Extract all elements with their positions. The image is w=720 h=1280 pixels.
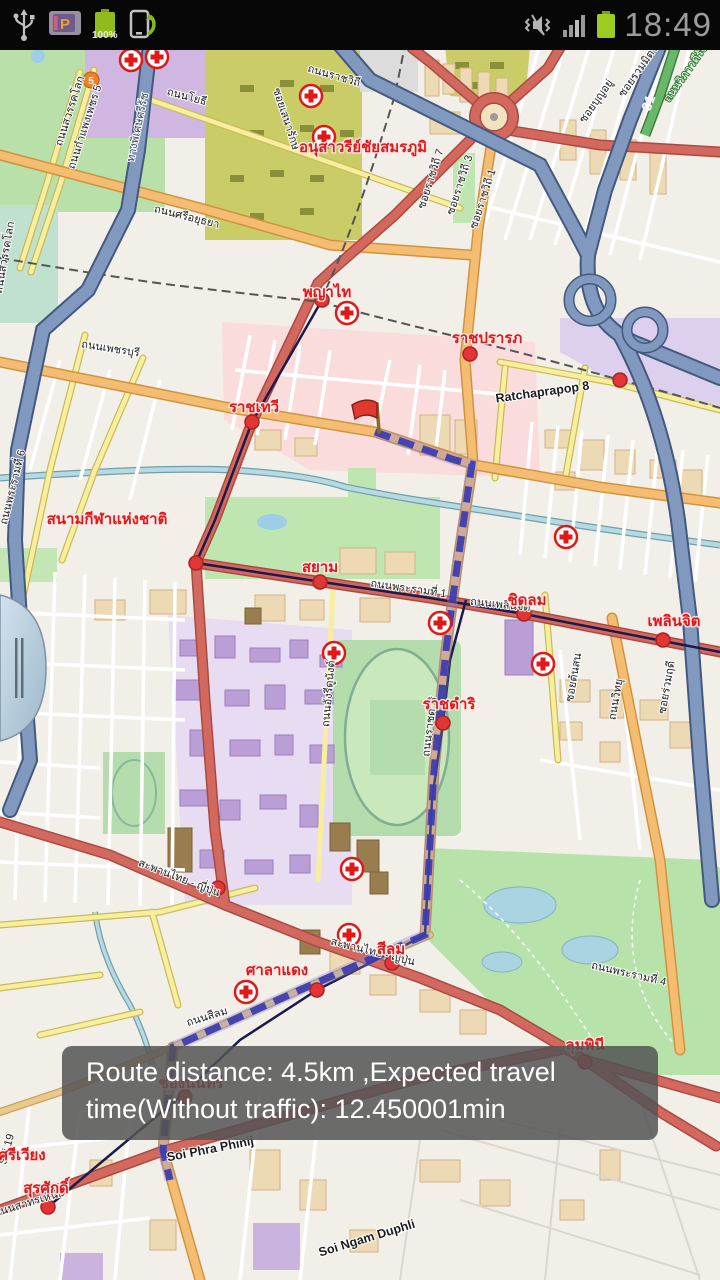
svg-text:สุรศักดิ์: สุรศักดิ์ (23, 1176, 70, 1198)
svg-text:P: P (60, 16, 70, 33)
signal-strength-icon (562, 12, 588, 38)
svg-text:ราชเทวี: ราชเทวี (229, 399, 279, 416)
svg-text:เพลินจิต: เพลินจิต (648, 612, 701, 630)
svg-text:ราชปรารภ: ราชปรารภ (452, 330, 523, 347)
battery-percent-label: 100% (92, 32, 118, 40)
clock: 18:49 (624, 6, 712, 44)
status-bar: P 100% (0, 0, 720, 50)
svg-text:สนามกีฬาแห่งชาติ: สนามกีฬาแห่งชาติ (47, 510, 168, 528)
mute-vibrate-icon (524, 11, 554, 39)
svg-text:ชิดลม: ชิดลม (507, 591, 546, 609)
svg-text:ศรีเวียง: ศรีเวียง (0, 1147, 46, 1164)
svg-text:พญาไท: พญาไท (303, 282, 352, 301)
drawer-handle[interactable] (0, 594, 50, 742)
battery-icon (596, 11, 616, 39)
usb-icon (10, 8, 38, 42)
svg-text:อนุสาวรีย์ชัยสมรภูมิ: อนุสาวรีย์ชัยสมรภูมิ (299, 138, 427, 157)
svg-text:สยาม: สยาม (302, 559, 338, 576)
svg-text:สีลม: สีลม (377, 941, 405, 958)
phone-screen: 5 ถนนโยธี ถนนราชวิถี ซอยเสนารักษ์ ถนนสวร… (0, 0, 720, 1280)
route-info-text: Route distance: 4.5km ,Expected travel t… (86, 1057, 556, 1124)
parking-app-icon: P (48, 8, 82, 38)
svg-text:ศาลาแดง: ศาลาแดง (246, 962, 308, 979)
svg-text:ราชดำริ: ราชดำริ (423, 695, 477, 713)
route-info-toast: Route distance: 4.5km ,Expected travel t… (62, 1046, 658, 1140)
screen-rotate-icon (128, 8, 158, 40)
